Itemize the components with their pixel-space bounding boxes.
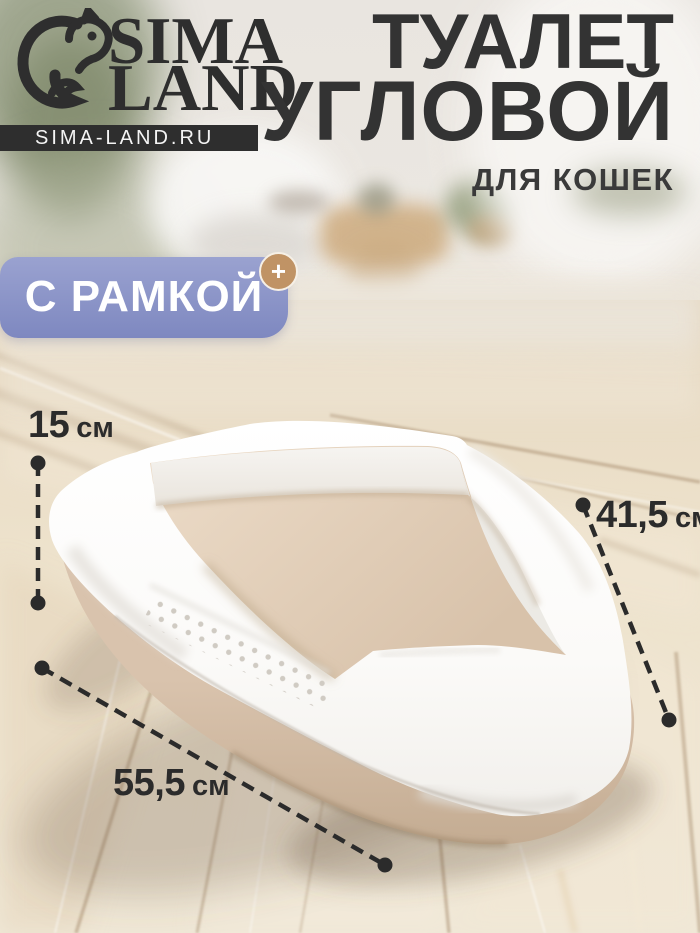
side-unit: см: [675, 502, 700, 534]
side-dimension-label: 41,5см: [596, 494, 700, 537]
brand-logo: SIMA LAND: [14, 8, 298, 112]
front-unit: см: [192, 770, 230, 802]
title-subtitle: ДЛЯ КОШЕК: [261, 162, 674, 198]
product-title: ТУАЛЕТ УГЛОВОЙ ДЛЯ КОШЕК: [261, 6, 674, 198]
side-value: 41,5: [596, 494, 668, 536]
title-line2: УГЛОВОЙ: [261, 72, 674, 152]
squirrel-logo-icon: [14, 8, 114, 110]
plus-icon: +: [259, 252, 298, 291]
height-unit: см: [76, 412, 114, 444]
website-url: SIMA-LAND.RU: [35, 127, 214, 149]
feature-badge: С РАМКОЙ +: [0, 257, 288, 338]
height-value: 15: [28, 404, 69, 446]
front-dimension-label: 55,5см: [113, 762, 230, 805]
height-dimension-label: 15см: [28, 404, 114, 447]
squirrel-eye: [88, 32, 97, 41]
website-bar: SIMA-LAND.RU: [0, 125, 258, 151]
front-value: 55,5: [113, 762, 185, 804]
plus-glyph: +: [271, 256, 286, 287]
feature-badge-label: С РАМКОЙ: [25, 272, 264, 324]
product-banner: 15см 41,5см 55,5см SIMA LAND SIMA-LAND.R…: [0, 0, 700, 933]
